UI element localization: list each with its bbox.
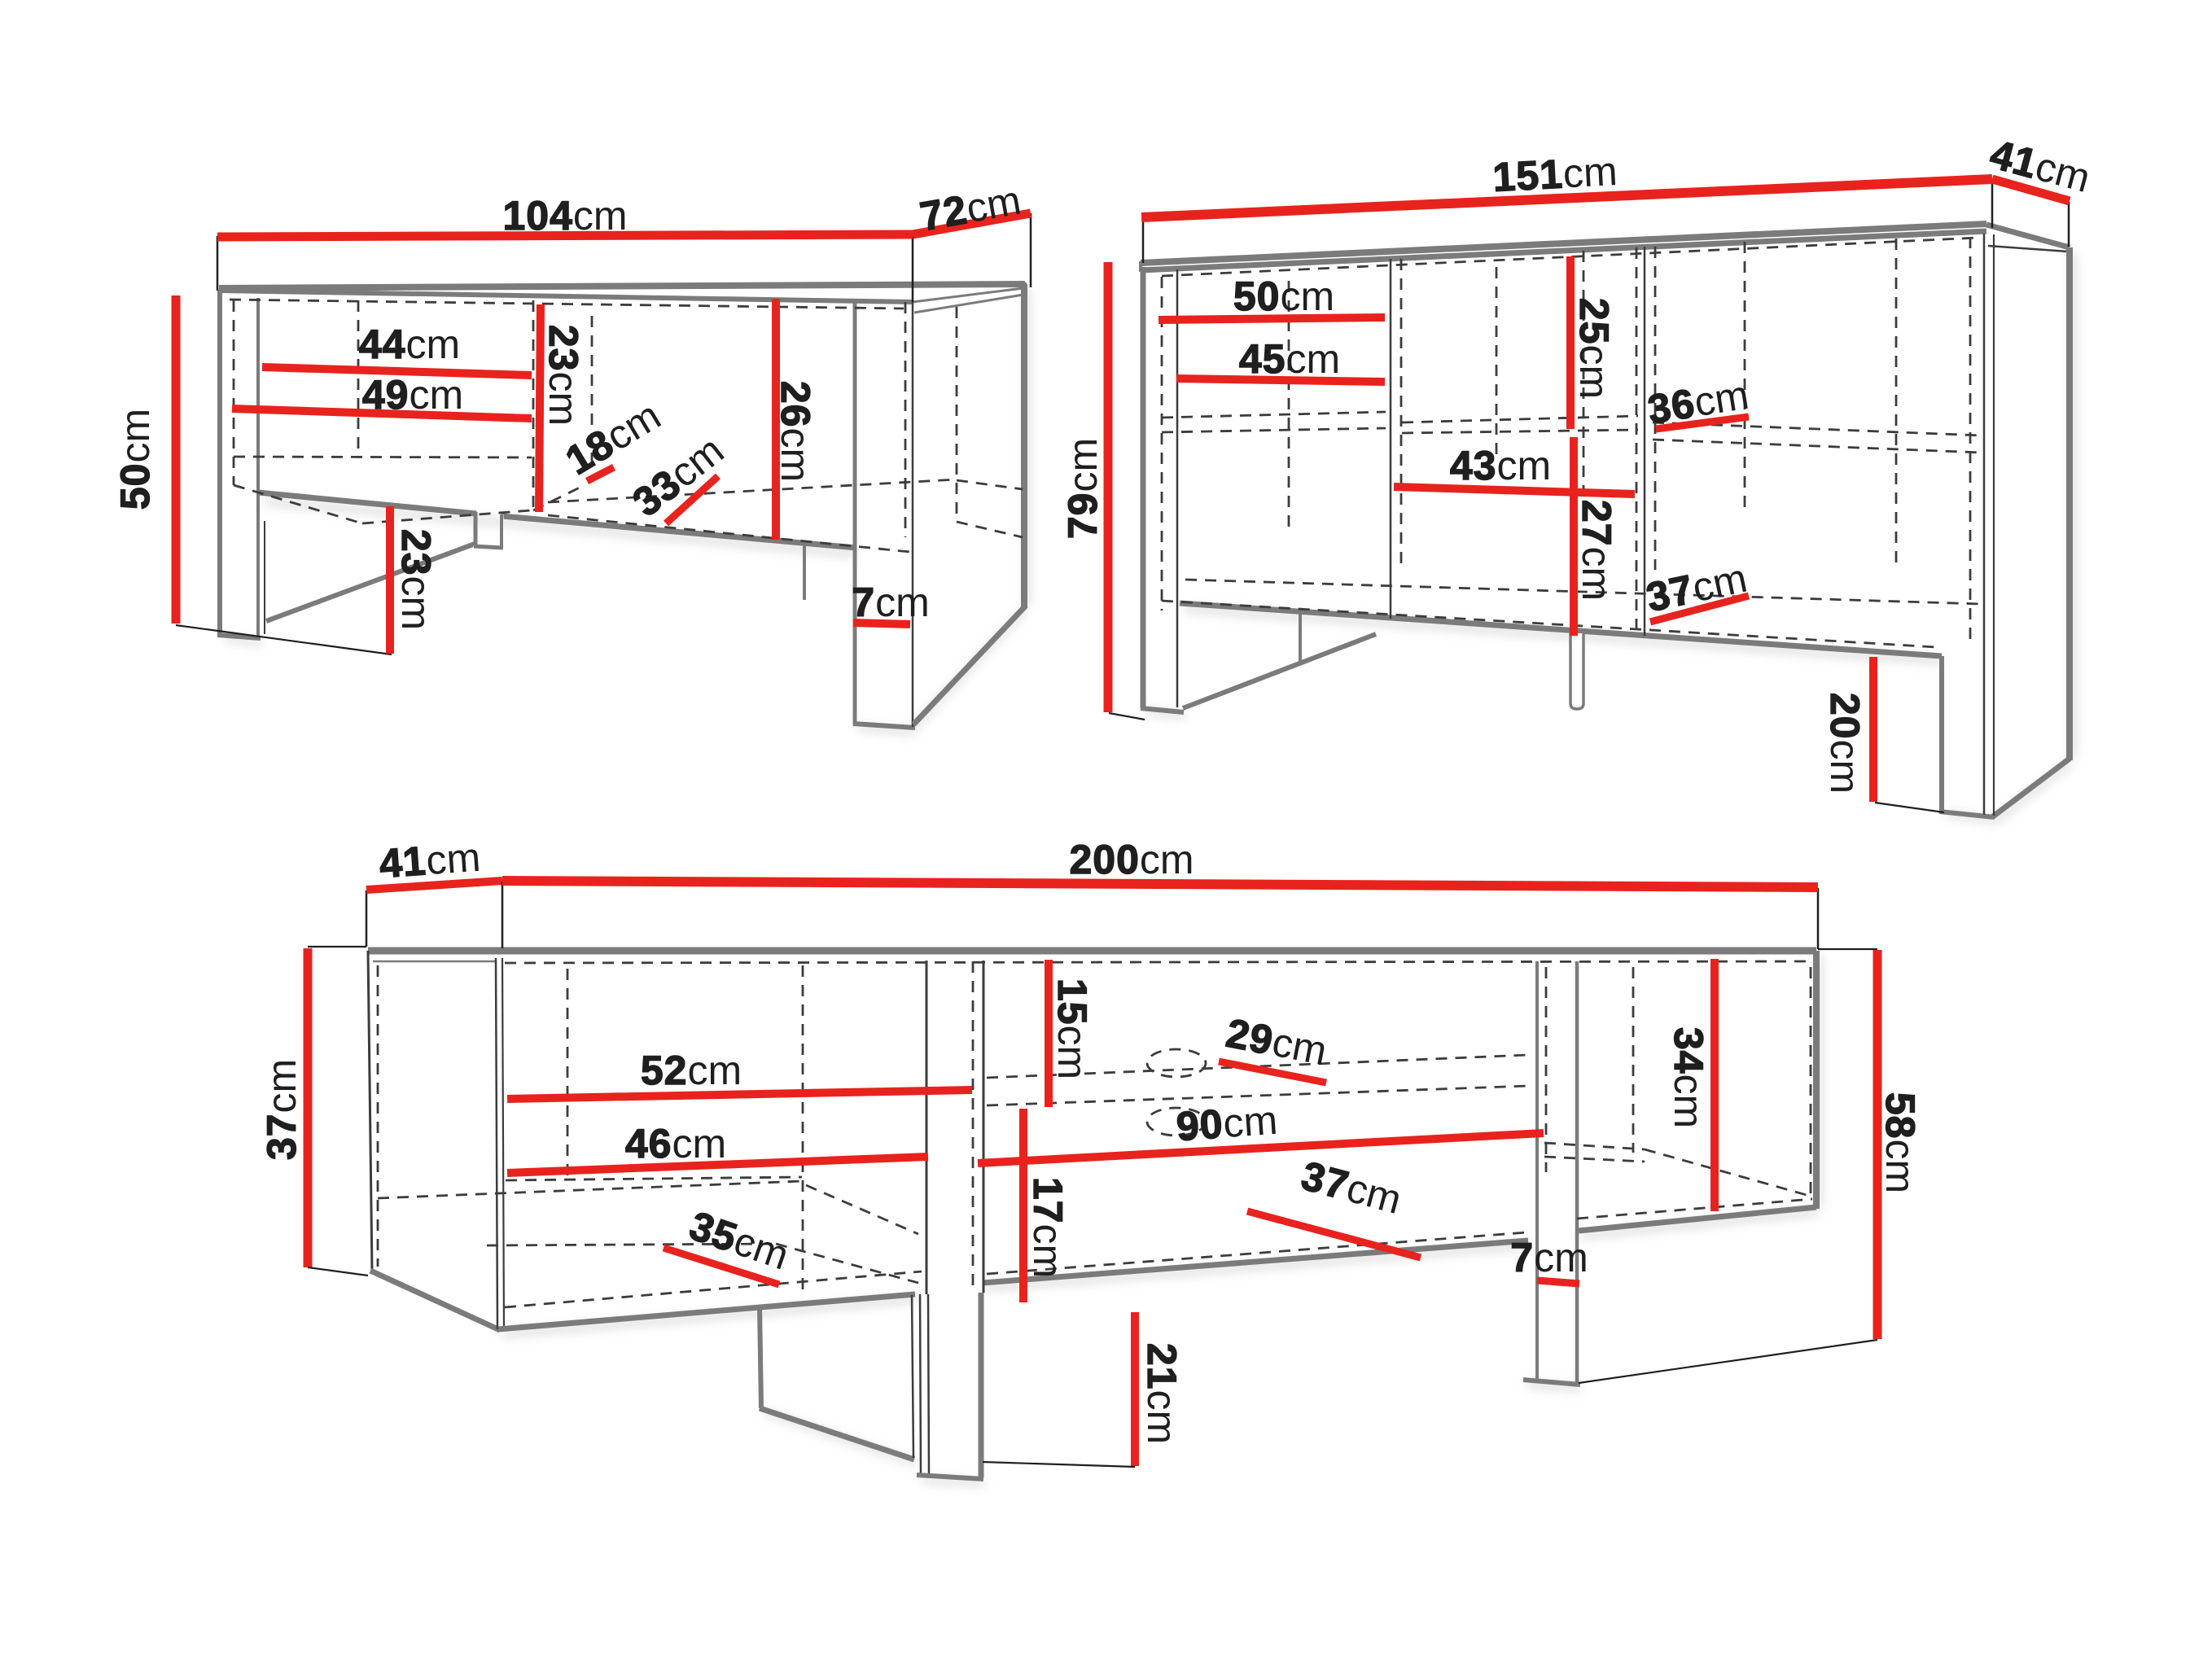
svg-text:79cm: 79cm [1060, 438, 1106, 539]
svg-text:7cm: 7cm [1510, 1235, 1588, 1280]
svg-text:151cm: 151cm [1491, 148, 1618, 200]
svg-text:104cm: 104cm [502, 193, 627, 239]
svg-text:200cm: 200cm [1069, 837, 1194, 882]
svg-text:17cm: 17cm [1025, 1177, 1071, 1278]
svg-text:49cm: 49cm [362, 372, 463, 418]
svg-text:90cm: 90cm [1175, 1097, 1279, 1150]
svg-text:52cm: 52cm [641, 1048, 742, 1093]
svg-text:15cm: 15cm [1049, 978, 1095, 1079]
svg-text:23cm: 23cm [541, 325, 586, 426]
svg-text:20cm: 20cm [1822, 693, 1868, 794]
svg-text:25cm: 25cm [1571, 298, 1617, 399]
svg-text:50cm: 50cm [1233, 274, 1334, 319]
svg-text:45cm: 45cm [1239, 336, 1340, 382]
svg-text:23cm: 23cm [393, 529, 439, 630]
svg-text:27cm: 27cm [1574, 500, 1619, 601]
svg-text:21cm: 21cm [1139, 1343, 1185, 1444]
svg-text:7cm: 7cm [852, 580, 929, 625]
svg-text:46cm: 46cm [625, 1121, 726, 1166]
svg-text:44cm: 44cm [359, 322, 460, 367]
svg-text:37cm: 37cm [259, 1059, 304, 1160]
svg-text:58cm: 58cm [1877, 1092, 1923, 1193]
svg-text:26cm: 26cm [773, 381, 818, 482]
svg-text:34cm: 34cm [1666, 1027, 1711, 1128]
svg-text:41cm: 41cm [378, 834, 482, 887]
svg-text:50cm: 50cm [112, 409, 158, 510]
svg-text:43cm: 43cm [1450, 443, 1551, 488]
